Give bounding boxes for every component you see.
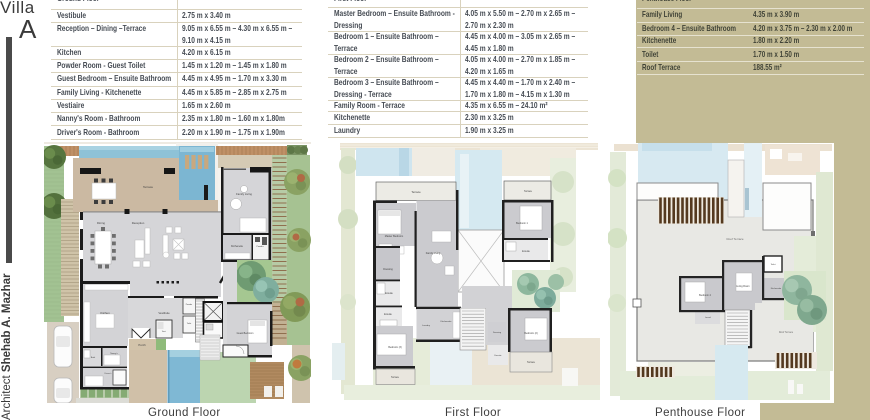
svg-text:Kitchen: Kitchen	[100, 311, 110, 315]
svg-text:Roof Terrace: Roof Terrace	[779, 331, 794, 334]
svg-text:Living Room: Living Room	[736, 285, 749, 288]
svg-text:Master Bedroom: Master Bedroom	[385, 235, 403, 238]
svg-text:Dining: Dining	[97, 221, 105, 225]
svg-text:Vestibule: Vestibule	[158, 311, 170, 315]
svg-text:Family Living: Family Living	[426, 252, 441, 255]
svg-text:Laundry: Laundry	[422, 324, 431, 327]
svg-text:Vest.: Vest.	[162, 330, 167, 333]
svg-text:Kitchenette: Kitchenette	[771, 287, 782, 290]
svg-text:Kitchenette: Kitchenette	[441, 320, 453, 323]
svg-text:Ensuite: Ensuite	[385, 292, 393, 295]
svg-text:Driver's: Driver's	[105, 373, 112, 375]
svg-text:Powder: Powder	[256, 245, 263, 248]
svg-text:Bedroom (2): Bedroom (2)	[524, 332, 537, 335]
svg-text:Ensuite: Ensuite	[522, 250, 530, 253]
svg-text:Bedroom 1: Bedroom 1	[516, 222, 528, 225]
svg-text:Laund.: Laund.	[705, 317, 712, 319]
svg-text:Reception: Reception	[132, 221, 145, 225]
svg-text:Guest Bedroom: Guest Bedroom	[237, 332, 254, 335]
svg-text:Terrace: Terrace	[524, 190, 533, 193]
svg-text:Terrace: Terrace	[411, 190, 421, 194]
svg-text:Powder: Powder	[186, 303, 193, 306]
svg-text:Terrace: Terrace	[391, 376, 400, 379]
svg-text:Bedroom 4: Bedroom 4	[699, 294, 711, 297]
svg-text:Nanny's: Nanny's	[110, 353, 117, 355]
svg-text:Dressing: Dressing	[493, 331, 502, 334]
svg-text:Toilet: Toilet	[187, 322, 192, 325]
svg-text:Toilet: Toilet	[771, 263, 776, 266]
svg-text:Dressing: Dressing	[383, 268, 393, 271]
svg-text:Ensuite: Ensuite	[384, 313, 392, 316]
svg-text:Ensuite: Ensuite	[495, 354, 503, 357]
svg-text:Terrace: Terrace	[527, 361, 536, 364]
svg-text:Bedroom (3): Bedroom (3)	[388, 346, 401, 349]
svg-text:Terrace: Terrace	[143, 185, 153, 189]
svg-text:Porch: Porch	[138, 343, 146, 347]
svg-text:Kitchenette: Kitchenette	[231, 245, 244, 248]
svg-text:Roof Terrace: Roof Terrace	[726, 237, 743, 241]
